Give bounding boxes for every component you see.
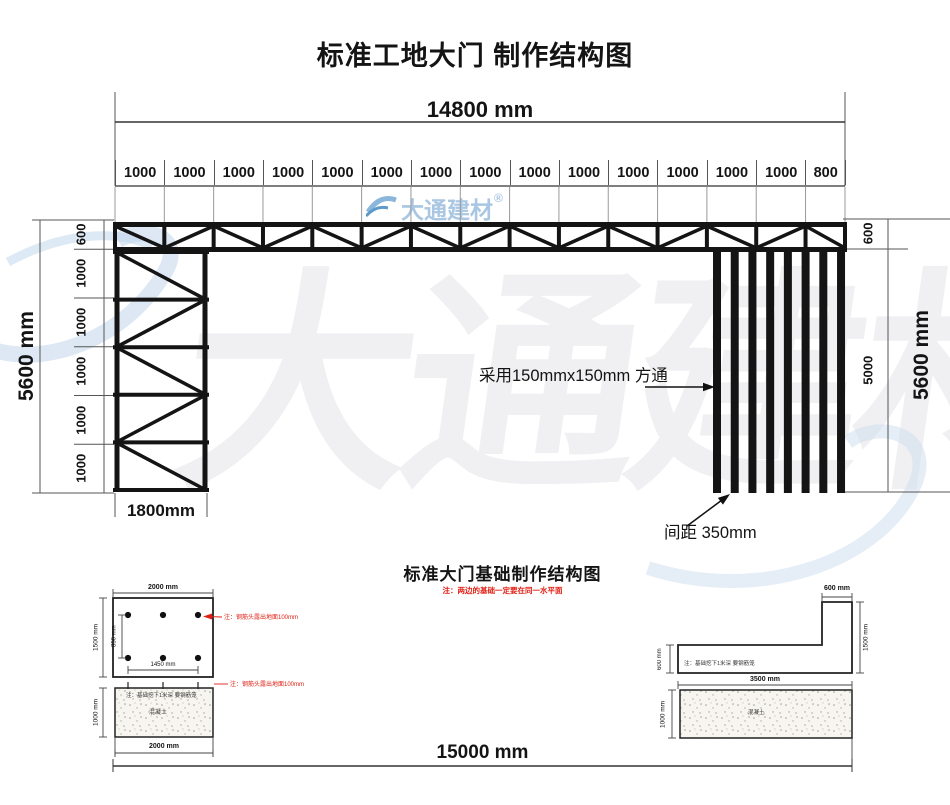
main-title: 标准工地大门 制作结构图 xyxy=(0,34,950,73)
left-section-rebar-note: 注：钢筋头露出地面100mm xyxy=(230,679,304,688)
right-segment-label: 5000 xyxy=(857,248,879,492)
dim-left-segment-stack: 600 1000 1000 1000 1000 1000 xyxy=(70,220,92,493)
drawing-canvas: 大通建材 大通建材® xyxy=(0,0,950,805)
left-section-depth-label: 1000 mm xyxy=(91,688,101,737)
dim-right-overall-label: 5600 mm xyxy=(906,219,938,492)
right-section-leftheight-label: 600 mm xyxy=(655,644,665,674)
right-section-rightheight-label: 1500 mm xyxy=(861,602,871,673)
right-segment-label: 600 xyxy=(857,219,879,248)
left-plan-colspan-label: 1450 mm xyxy=(128,662,198,668)
top-segment-label: 1000 xyxy=(215,160,264,185)
dim-overall-bottom-label: 15000 mm xyxy=(113,742,852,764)
gate-truss-structure xyxy=(113,225,847,494)
foundation-title: 标准大门基础制作结构图 xyxy=(350,560,655,585)
top-segment-label: 1000 xyxy=(757,160,806,185)
top-segment-label: 1000 xyxy=(412,160,461,185)
segment-grid-lines xyxy=(115,187,845,222)
dim-column-width-label: 1800mm xyxy=(113,501,209,521)
left-segment-label: 1000 xyxy=(70,347,92,396)
top-segment-label: 800 xyxy=(806,160,846,185)
foundation-level-note: 注：两边的基础一定要在同一水平面 xyxy=(350,585,655,596)
top-segment-label: 1000 xyxy=(116,160,165,185)
top-segment-label: 1000 xyxy=(264,160,313,185)
dim-right-segment-stack: 600 5000 xyxy=(857,219,879,492)
left-section-material-label: 混凝土 xyxy=(149,707,167,716)
dim-left-overall-label: 5600 mm xyxy=(14,220,40,493)
top-segment-label: 1000 xyxy=(708,160,757,185)
left-segment-label: 1000 xyxy=(70,249,92,298)
left-plan-height-label: 1500 mm xyxy=(91,598,101,677)
left-plan-rebar-note: 注：钢筋头露出地面100mm xyxy=(224,612,298,621)
spacing-note-label: 间距 350mm xyxy=(664,519,757,543)
left-segment-label: 1000 xyxy=(70,298,92,347)
left-segment-label: 1000 xyxy=(70,444,92,493)
left-plan-rowgap-label: 850 mm xyxy=(110,615,119,658)
left-segment-label: 1000 xyxy=(70,396,92,445)
right-section-dig-note: 注：基础挖下1米深 要钢筋笼 xyxy=(684,659,755,667)
left-plan-width-label: 2000 mm xyxy=(113,584,213,591)
left-section-dig-note: 注：基础挖下1米深 要钢筋笼 xyxy=(126,691,197,699)
top-segment-label: 1000 xyxy=(363,160,412,185)
top-segment-label: 1000 xyxy=(165,160,214,185)
right-section-topwidth-label: 600 mm xyxy=(810,585,864,592)
top-segment-label: 1000 xyxy=(461,160,510,185)
top-segment-label: 1000 xyxy=(609,160,658,185)
left-segment-label: 600 xyxy=(70,220,92,249)
dim-overall-top-label: 14800 mm xyxy=(115,97,845,123)
right-section-depth-label: 1000 mm xyxy=(658,690,668,738)
tube-note-label: 采用150mmx150mm 方通 xyxy=(479,362,668,386)
top-segment-label: 1000 xyxy=(313,160,362,185)
top-segment-label: 1000 xyxy=(560,160,609,185)
right-section-material-label: 混凝土 xyxy=(748,708,765,716)
top-segment-label: 1000 xyxy=(511,160,560,185)
right-section-width-label: 3500 mm xyxy=(678,676,852,683)
top-segment-label: 1000 xyxy=(658,160,707,185)
dim-top-segment-row: 1000 1000 1000 1000 1000 1000 1000 1000 … xyxy=(115,160,846,185)
